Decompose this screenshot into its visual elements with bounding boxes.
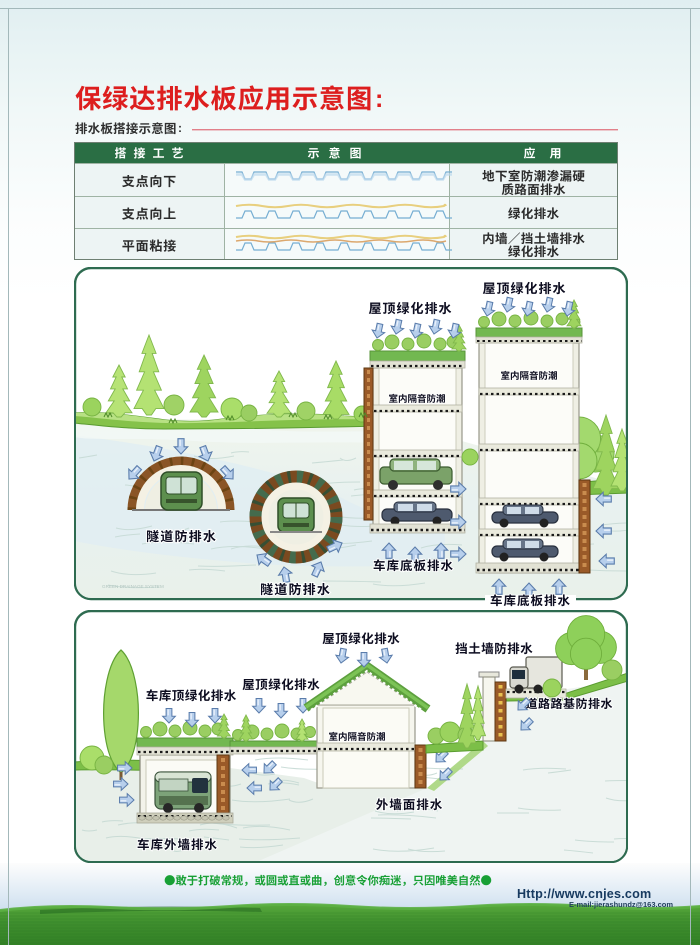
svg-text:GREEN DRAINAGE SYSTEM: GREEN DRAINAGE SYSTEM — [102, 584, 164, 589]
svg-text::: : — [375, 85, 383, 113]
svg-text::: : — [178, 121, 182, 135]
svg-text:Http://www.cnjes.com: Http://www.cnjes.com — [517, 887, 651, 901]
svg-text:E-mail:jierashundz@163.com: E-mail:jierashundz@163.com — [569, 900, 673, 909]
